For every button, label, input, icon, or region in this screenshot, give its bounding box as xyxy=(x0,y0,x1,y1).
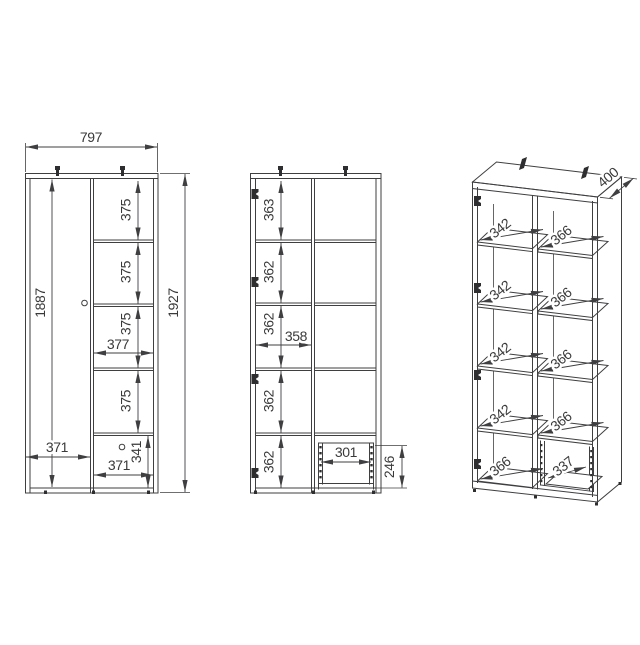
foot-icon xyxy=(254,491,257,495)
dim-int-cell-5: 362 xyxy=(261,450,277,473)
dim-door-width: 371 xyxy=(46,439,69,455)
dim-inner-width: 358 xyxy=(285,328,308,344)
foot-icon xyxy=(534,496,537,499)
dim-cell-3: 375 xyxy=(118,312,134,335)
dim-drawer-height: 246 xyxy=(381,455,397,478)
dim-front-width: 797 xyxy=(80,129,103,145)
hinge-icon xyxy=(252,277,259,287)
dim-depth: 400 xyxy=(594,164,622,191)
foot-icon xyxy=(147,491,150,495)
wall-bracket-icon xyxy=(55,166,60,176)
foot-icon xyxy=(92,491,95,495)
door-knob-icon xyxy=(119,444,125,450)
hinge-icon xyxy=(252,189,259,199)
dim-inner-height: 1887 xyxy=(32,288,48,318)
dim-int-cell-3: 362 xyxy=(261,312,277,335)
wall-bracket-icon xyxy=(278,166,283,176)
perspective-view: 400 342 342 342 342 366 366 366 366 366 … xyxy=(473,157,638,506)
foot-icon xyxy=(619,482,622,485)
hinge-icon xyxy=(474,283,481,293)
side-face xyxy=(598,177,622,502)
technical-drawing-page: 797 1887 1927 375 375 375 375 377 371 37… xyxy=(0,0,640,640)
wall-bracket-icon xyxy=(120,166,125,176)
dim-int-cell-4: 362 xyxy=(261,389,277,412)
wall-bracket-icon xyxy=(519,157,527,170)
dim-cell-2: 375 xyxy=(118,260,134,283)
hinge-icon xyxy=(474,370,481,380)
foot-icon xyxy=(312,491,315,495)
hinge-icon xyxy=(252,468,259,478)
cabinet-dimension-drawing: 797 1887 1927 375 375 375 375 377 371 37… xyxy=(0,0,640,640)
hinge-icon xyxy=(474,459,481,469)
dim-cell-4: 375 xyxy=(118,389,134,412)
foot-icon xyxy=(595,503,598,506)
door-knob-icon xyxy=(82,300,88,306)
interior-view: 363 362 362 362 362 358 301 246 xyxy=(251,166,408,494)
foot-icon xyxy=(44,491,47,495)
hinge-icon xyxy=(474,196,481,206)
dim-drawer-width: 301 xyxy=(335,444,358,460)
foot-icon xyxy=(473,489,476,492)
dim-cell-width: 377 xyxy=(107,336,130,352)
hinge-icon xyxy=(252,374,259,384)
dim-int-cell-2: 362 xyxy=(261,260,277,283)
dim-bottom-door-height: 341 xyxy=(128,440,144,463)
wall-bracket-icon xyxy=(343,166,348,176)
dim-int-cell-1: 363 xyxy=(261,198,277,221)
foot-icon xyxy=(372,491,375,495)
front-view: 797 1887 1927 375 375 375 375 377 371 37… xyxy=(26,129,191,494)
dim-total-height: 1927 xyxy=(165,288,181,318)
dim-cell-1: 375 xyxy=(118,198,134,221)
